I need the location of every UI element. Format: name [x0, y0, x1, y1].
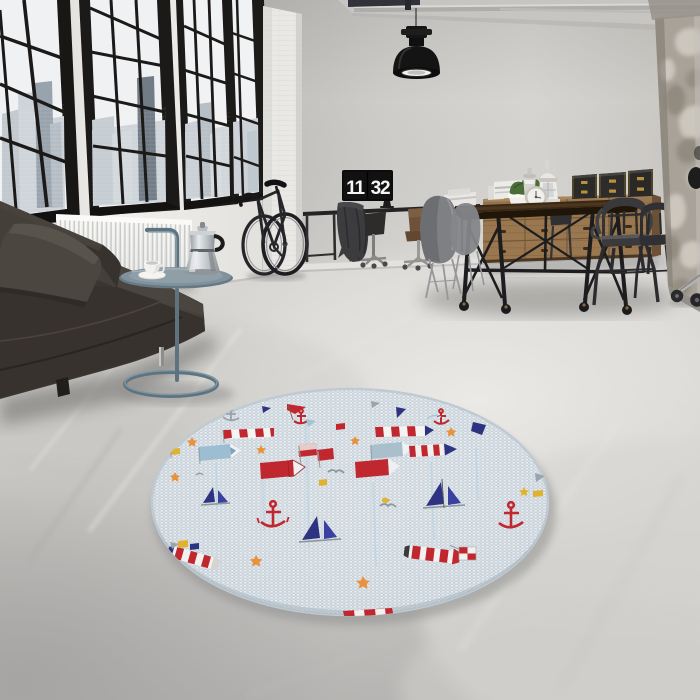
- svg-text:11: 11: [346, 178, 365, 199]
- svg-text:32: 32: [371, 178, 390, 199]
